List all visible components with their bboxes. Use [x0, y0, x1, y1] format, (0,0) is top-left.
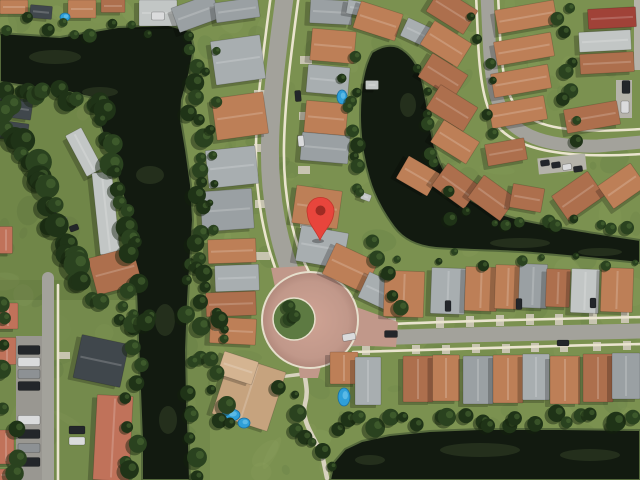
- house: [201, 291, 257, 320]
- water-glint: [440, 443, 520, 457]
- driveway: [298, 166, 310, 174]
- car: [18, 358, 40, 367]
- car: [445, 301, 451, 312]
- car: [551, 161, 561, 168]
- water-glint: [355, 455, 385, 465]
- car: [590, 298, 596, 308]
- car: [69, 426, 85, 434]
- car: [298, 135, 305, 146]
- pool-highlight: [64, 14, 69, 18]
- water-glint: [29, 50, 81, 64]
- car: [622, 81, 630, 94]
- house: [583, 7, 637, 33]
- house: [205, 35, 266, 89]
- pool-highlight: [343, 391, 348, 399]
- car: [18, 382, 40, 391]
- house: [210, 264, 260, 295]
- car: [540, 159, 550, 166]
- driveway: [58, 352, 70, 359]
- water-glint: [136, 166, 164, 184]
- house: [575, 52, 635, 78]
- house: [458, 356, 493, 407]
- house: [574, 30, 632, 56]
- pool-highlight: [341, 92, 346, 98]
- water-glint: [578, 248, 622, 256]
- car: [516, 299, 522, 310]
- car: [573, 165, 583, 172]
- car: [18, 370, 40, 379]
- pool-highlight: [243, 420, 248, 425]
- pin-inner-dot: [316, 206, 326, 216]
- satellite-map[interactable]: [0, 0, 640, 480]
- driveway: [593, 342, 601, 351]
- water-glint: [159, 406, 177, 434]
- house: [607, 353, 640, 402]
- car: [557, 340, 569, 346]
- car: [18, 346, 40, 355]
- house: [0, 227, 13, 257]
- car: [385, 331, 398, 338]
- house: [428, 355, 460, 404]
- pin-shadow: [312, 239, 324, 243]
- house: [595, 267, 634, 315]
- house: [200, 145, 259, 192]
- car: [621, 101, 629, 113]
- house: [545, 356, 580, 407]
- house: [565, 268, 600, 316]
- water-glint: [400, 93, 416, 117]
- house: [518, 354, 550, 403]
- water-glint: [155, 304, 175, 336]
- map-canvas[interactable]: [0, 0, 640, 480]
- water-glint: [490, 238, 550, 248]
- tree: [626, 410, 640, 425]
- water-glint: [560, 449, 620, 461]
- car: [69, 437, 85, 445]
- car: [562, 163, 572, 170]
- car: [295, 90, 302, 101]
- driveway: [256, 252, 270, 260]
- house: [350, 357, 381, 408]
- house: [203, 238, 257, 267]
- car: [152, 12, 165, 20]
